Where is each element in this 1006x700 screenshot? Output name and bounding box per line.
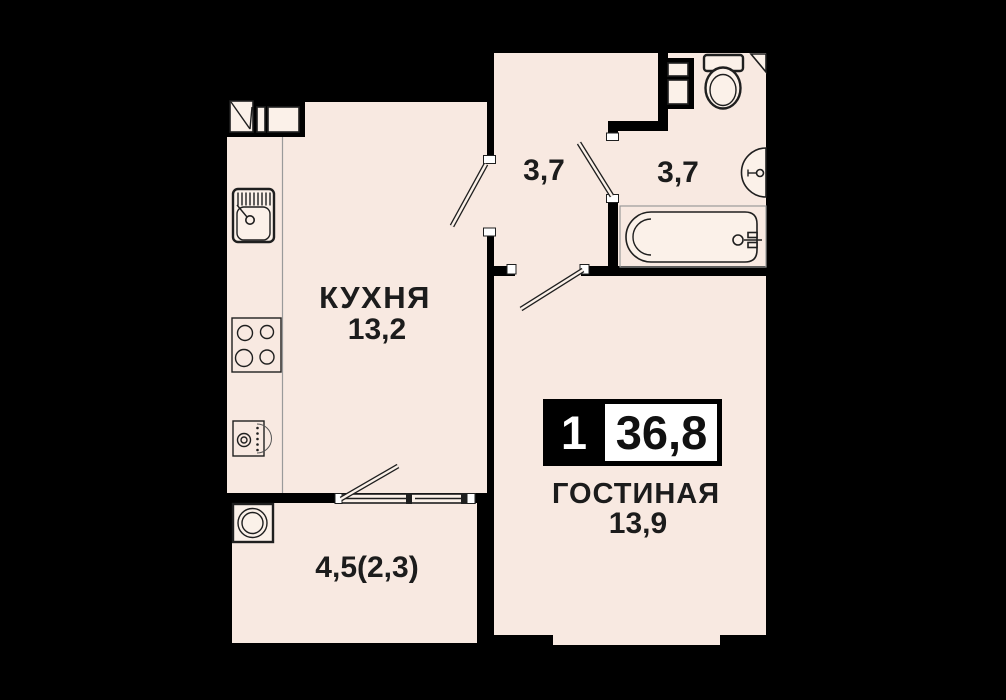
floor-plan-canvas: 1 36,8 КУХНЯ 13,2 3,7 3,7 ГОСТИНАЯ 13,9 … — [0, 0, 1006, 700]
hallway-floor — [494, 121, 608, 266]
bathroom-area: 3,7 — [657, 156, 699, 189]
hallway-area: 3,7 — [523, 154, 565, 187]
vent-shaft-block-kitchen — [225, 95, 305, 137]
toilet — [704, 55, 743, 109]
living-label: ГОСТИНАЯ — [552, 478, 720, 510]
balcony-window-door — [335, 493, 475, 504]
kitchen-door-opening — [484, 161, 495, 229]
kitchen-label: КУХНЯ — [319, 280, 431, 315]
bathtub — [620, 206, 766, 267]
floor-plan: 1 36,8 КУХНЯ 13,2 3,7 3,7 ГОСТИНАЯ 13,9 … — [0, 0, 1006, 700]
hallway-floor-top — [494, 53, 658, 121]
kitchen-sink — [233, 189, 274, 242]
living-window-recess — [553, 635, 720, 645]
floor-areas — [227, 53, 766, 645]
living-area: 13,9 — [609, 507, 667, 540]
kitchen-area: 13,2 — [348, 313, 406, 346]
total-area-badge: 1 36,8 — [543, 399, 722, 466]
badge-total-area: 36,8 — [616, 406, 707, 459]
balcony-area: 4,5(2,3) — [315, 551, 418, 584]
living-door-opening — [515, 266, 581, 276]
washing-machine — [233, 504, 273, 542]
vent-shaft-block-bathroom — [663, 58, 694, 109]
badge-rooms-count: 1 — [561, 406, 587, 459]
